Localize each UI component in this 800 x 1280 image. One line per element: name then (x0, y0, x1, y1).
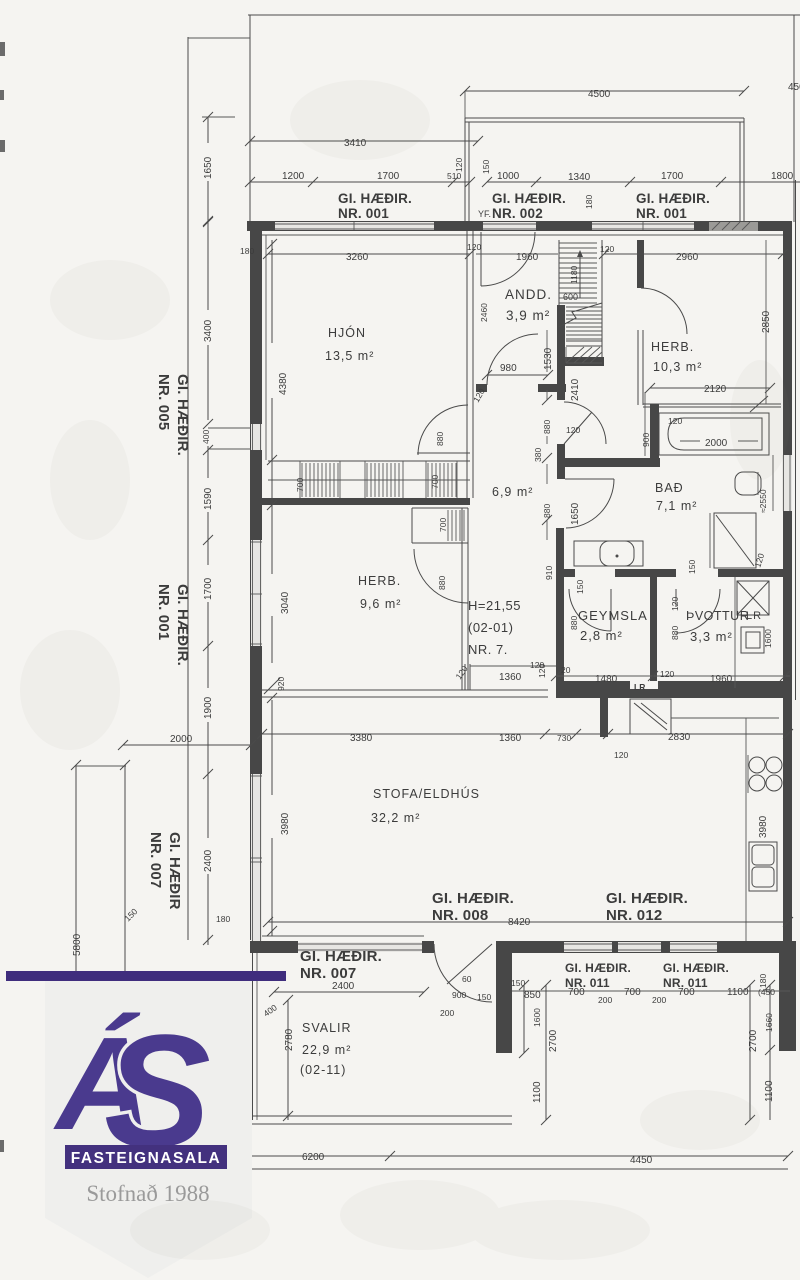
svg-text:3980: 3980 (758, 815, 769, 838)
svg-text:3,3 m²: 3,3 m² (690, 629, 733, 644)
svg-text:2780: 2780 (284, 1028, 295, 1051)
svg-text:150: 150 (477, 992, 491, 1002)
svg-text:GI. HÆÐIR: GI. HÆÐIR (166, 832, 183, 910)
svg-text:200: 200 (598, 995, 612, 1005)
svg-text:FASTEIGNASALA: FASTEIGNASALA (71, 1150, 221, 1167)
svg-text:5800: 5800 (72, 933, 83, 956)
svg-text:NR. 002: NR. 002 (492, 206, 543, 221)
svg-text:120: 120 (454, 158, 464, 172)
svg-text:(02-11): (02-11) (300, 1063, 346, 1077)
svg-text:850: 850 (524, 990, 541, 1001)
svg-text:120: 120 (467, 242, 481, 252)
svg-text:ANDD.: ANDD. (505, 287, 552, 302)
svg-text:910: 910 (544, 566, 554, 580)
svg-text:1660: 1660 (764, 1013, 774, 1032)
svg-text:180: 180 (216, 914, 230, 924)
svg-text:450: 450 (788, 82, 800, 93)
svg-text:HERB.: HERB. (358, 574, 401, 588)
svg-text:GI. HÆÐIR.: GI. HÆÐIR. (338, 191, 412, 206)
svg-text:HERB.: HERB. (651, 340, 694, 354)
svg-text:1960: 1960 (516, 252, 539, 263)
svg-text:1650: 1650 (570, 502, 581, 525)
svg-text:NR. 012: NR. 012 (606, 907, 662, 924)
svg-text:YF.: YF. (478, 209, 491, 219)
svg-text:2700: 2700 (548, 1029, 559, 1052)
svg-text:1650: 1650 (203, 156, 214, 179)
svg-text:GEYMSLA: GEYMSLA (578, 608, 648, 623)
svg-text:1900: 1900 (203, 696, 214, 719)
svg-text:180: 180 (240, 246, 254, 256)
svg-text:NR. 007: NR. 007 (147, 832, 164, 888)
svg-text:4380: 4380 (278, 372, 289, 395)
svg-text:880: 880 (569, 616, 579, 630)
svg-text:920: 920 (276, 677, 286, 691)
svg-text:150: 150 (687, 560, 697, 574)
svg-text:2850: 2850 (761, 310, 772, 333)
svg-text:1700: 1700 (203, 577, 214, 600)
svg-text:200: 200 (440, 1008, 454, 1018)
svg-text:880: 880 (542, 504, 552, 518)
svg-text:120: 120 (566, 425, 580, 435)
svg-text:LR: LR (746, 610, 762, 622)
svg-text:20: 20 (561, 665, 571, 675)
svg-text:700: 700 (430, 475, 440, 489)
svg-text:2000: 2000 (170, 734, 193, 745)
svg-text:NR. 008: NR. 008 (432, 907, 488, 924)
svg-text:2700: 2700 (748, 1029, 759, 1052)
svg-text:880: 880 (437, 576, 447, 590)
svg-text:180: 180 (584, 195, 594, 209)
svg-text:700: 700 (438, 518, 448, 532)
svg-text:150: 150 (481, 160, 491, 174)
svg-text:980: 980 (500, 363, 517, 374)
svg-text:7,1 m²: 7,1 m² (656, 499, 697, 513)
svg-text:1600: 1600 (532, 1008, 542, 1027)
svg-text:1100: 1100 (532, 1081, 543, 1103)
svg-text:LR: LR (634, 682, 645, 692)
svg-text:3,9 m²: 3,9 m² (506, 308, 550, 323)
svg-text:3380: 3380 (350, 733, 373, 744)
svg-text:NR. 005: NR. 005 (155, 374, 172, 430)
svg-text:(02-01): (02-01) (468, 620, 513, 635)
svg-text:GI. HÆÐIR.: GI. HÆÐIR. (606, 890, 688, 907)
svg-text:1700: 1700 (377, 171, 400, 182)
svg-text:NR. 001: NR. 001 (155, 584, 172, 640)
svg-text:1480: 1480 (595, 674, 618, 685)
svg-text:1360: 1360 (499, 733, 522, 744)
svg-text:730: 730 (557, 733, 571, 743)
svg-text:GI. HÆÐIR.: GI. HÆÐIR. (300, 948, 382, 965)
svg-text:880: 880 (542, 420, 552, 434)
svg-text:2460: 2460 (479, 303, 489, 322)
svg-text:3400: 3400 (203, 319, 214, 342)
svg-text:NR. 7.: NR. 7. (468, 642, 508, 657)
svg-text:13,5 m²: 13,5 m² (325, 349, 374, 363)
svg-text:120: 120 (530, 660, 544, 670)
svg-text:1360: 1360 (499, 672, 522, 683)
svg-text:180: 180 (758, 974, 768, 988)
svg-text:8420: 8420 (508, 917, 531, 928)
svg-text:120: 120 (670, 597, 680, 611)
svg-text:2410: 2410 (570, 378, 581, 401)
svg-text:1590: 1590 (203, 487, 214, 510)
svg-text:150: 150 (575, 580, 585, 594)
svg-text:GI. HÆÐIR.: GI. HÆÐIR. (174, 584, 191, 666)
svg-text:22,9 m²: 22,9 m² (302, 1043, 351, 1057)
svg-text:2400: 2400 (332, 981, 355, 992)
svg-text:600: 600 (563, 292, 578, 302)
svg-text:ÞVOTTUR: ÞVOTTUR (686, 609, 749, 623)
svg-text:GI. HÆÐIR.: GI. HÆÐIR. (174, 374, 191, 456)
svg-text:HJÓN: HJÓN (328, 325, 366, 340)
svg-text:4450: 4450 (630, 1155, 653, 1166)
svg-text:900: 900 (641, 433, 651, 447)
svg-text:60: 60 (462, 974, 472, 984)
svg-text:NR. 007: NR. 007 (300, 965, 356, 982)
svg-text:GI. HÆÐIR.: GI. HÆÐIR. (565, 961, 631, 975)
svg-text:1800: 1800 (771, 171, 794, 182)
svg-text:1960: 1960 (710, 674, 733, 685)
svg-text:1100: 1100 (764, 1080, 775, 1102)
svg-text:1700: 1700 (661, 171, 684, 182)
svg-text:1530: 1530 (543, 347, 554, 370)
svg-text:3980: 3980 (280, 812, 291, 835)
svg-text:GI. HÆÐIR.: GI. HÆÐIR. (432, 890, 514, 907)
svg-text:1600: 1600 (763, 629, 773, 648)
svg-text:1340: 1340 (568, 172, 591, 183)
svg-text:3040: 3040 (280, 591, 291, 614)
svg-text:NR. 011: NR. 011 (663, 976, 708, 990)
svg-text:≈2550: ≈2550 (758, 489, 768, 513)
svg-text:200: 200 (652, 995, 666, 1005)
svg-text:2400: 2400 (203, 849, 214, 872)
svg-text:32,2 m²: 32,2 m² (371, 811, 420, 825)
svg-text:120: 120 (660, 669, 674, 679)
svg-text:1000: 1000 (497, 171, 520, 182)
svg-text:1180: 1180 (569, 265, 579, 284)
svg-text:NR. 001: NR. 001 (338, 206, 389, 221)
svg-text:4500: 4500 (588, 89, 611, 100)
svg-text:GI. HÆÐIR.: GI. HÆÐIR. (636, 191, 710, 206)
svg-text:400: 400 (201, 430, 211, 444)
svg-text:700: 700 (624, 987, 641, 998)
svg-text:H=21,55: H=21,55 (468, 598, 521, 613)
svg-text:2960: 2960 (676, 252, 699, 263)
svg-text:9,6 m²: 9,6 m² (360, 597, 401, 611)
svg-text:GI. HÆÐIR.: GI. HÆÐIR. (492, 191, 566, 206)
svg-text:2000: 2000 (705, 438, 728, 449)
svg-text:120: 120 (600, 244, 614, 254)
svg-text:10,3 m²: 10,3 m² (653, 360, 702, 374)
svg-text:SVALIR: SVALIR (302, 1021, 352, 1035)
svg-text:6200: 6200 (302, 1152, 325, 1163)
svg-text:380: 380 (533, 448, 543, 462)
svg-text:NR. 011: NR. 011 (565, 976, 610, 990)
svg-text:1200: 1200 (282, 171, 305, 182)
svg-text:BAÐ: BAÐ (655, 481, 684, 495)
svg-text:120: 120 (614, 750, 628, 760)
svg-text:2120: 2120 (704, 384, 727, 395)
svg-text:NR. 001: NR. 001 (636, 206, 687, 221)
svg-text:700: 700 (295, 478, 305, 492)
svg-text:3260: 3260 (346, 252, 369, 263)
svg-text:120: 120 (668, 416, 682, 426)
svg-text:880: 880 (435, 432, 445, 446)
svg-text:6,9 m²: 6,9 m² (492, 485, 533, 499)
svg-text:2830: 2830 (668, 732, 691, 743)
svg-text:900: 900 (452, 990, 466, 1000)
svg-text:880: 880 (670, 626, 680, 640)
svg-text:2,8 m²: 2,8 m² (580, 628, 623, 643)
svg-text:150: 150 (511, 978, 525, 988)
svg-text:STOFA/ELDHÚS: STOFA/ELDHÚS (373, 786, 480, 801)
svg-text:GI. HÆÐIR.: GI. HÆÐIR. (663, 961, 729, 975)
